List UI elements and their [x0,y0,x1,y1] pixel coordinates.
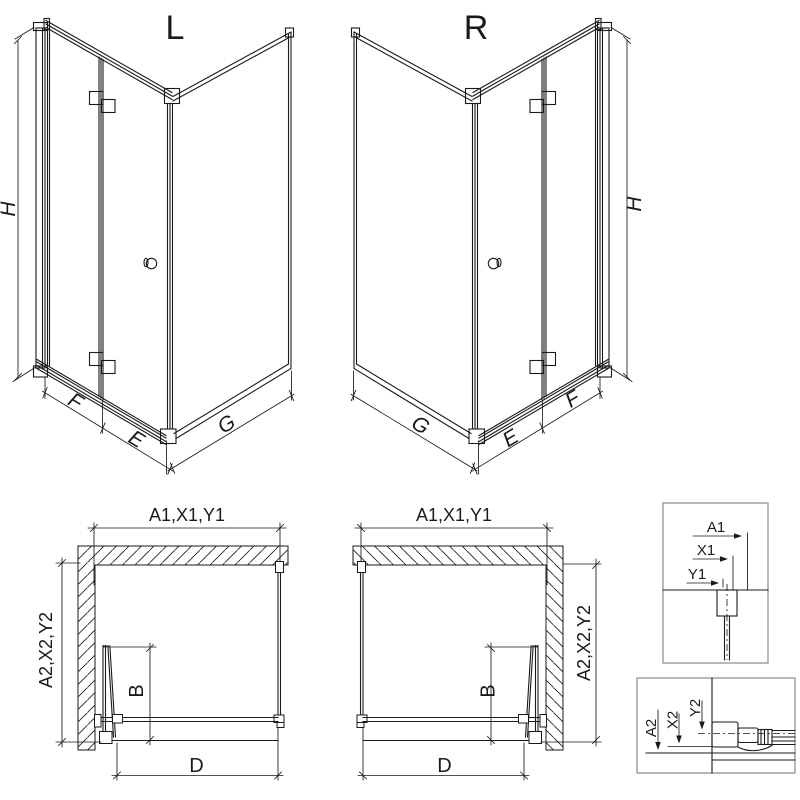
detail-label-y1: Y1 [688,566,706,583]
dim-label-depth-right-plan: A2,X2,Y2 [574,605,594,681]
arrowheads-right-icon [711,533,742,586]
detail-box-bottom-border [637,678,795,773]
shower-enclosure-diagram: L R H H F E G G E F A1,X1,Y1 A1,X1,Y1 A2… [0,0,800,800]
detail-label-x1: X1 [697,542,715,559]
detail-label-a2: A2 [643,719,660,737]
label-left-version: L [166,9,185,47]
technical-drawing-page: L R H H F E G G E F A1,X1,Y1 A1,X1,Y1 A2… [0,0,800,800]
dim-label-e-left: E [124,426,149,453]
label-right-version: R [464,9,489,47]
detail-label-a1: A1 [707,519,725,536]
plan-view-right [353,523,563,780]
dim-label-f-left: F [64,388,88,415]
dim-label-entry-left-plan: D [189,755,203,777]
dim-label-g-right: G [407,411,433,439]
dim-label-door-left-plan: B [126,684,148,697]
dim-label-e-right: E [499,424,524,451]
dim-label-width-right-plan: A1,X1,Y1 [416,505,492,525]
detail-label-x2: X2 [665,711,682,729]
detail-box-bottom [637,678,795,773]
seal-curve [738,746,772,751]
floor-lines [646,753,795,760]
rail-lines [772,731,795,745]
dim-label-width-left-plan: A1,X1,Y1 [149,505,225,525]
dim-label-g-left: G [214,410,240,438]
dim-label-door-right-plan: B [478,684,500,697]
dim-label-height-right: H [623,196,646,212]
plan-view-left [78,523,288,780]
detail-label-y2: Y2 [687,699,704,717]
dim-label-f-right: F [561,386,585,413]
dim-label-height-left: H [0,201,20,217]
glass-edge [725,616,730,660]
dim-label-depth-left-plan: A2,X2,Y2 [36,612,56,688]
bottom-profile-body [712,722,738,747]
dim-label-entry-right-plan: D [437,755,451,777]
iso-view-left [13,19,294,475]
iso-view-right [351,19,632,475]
